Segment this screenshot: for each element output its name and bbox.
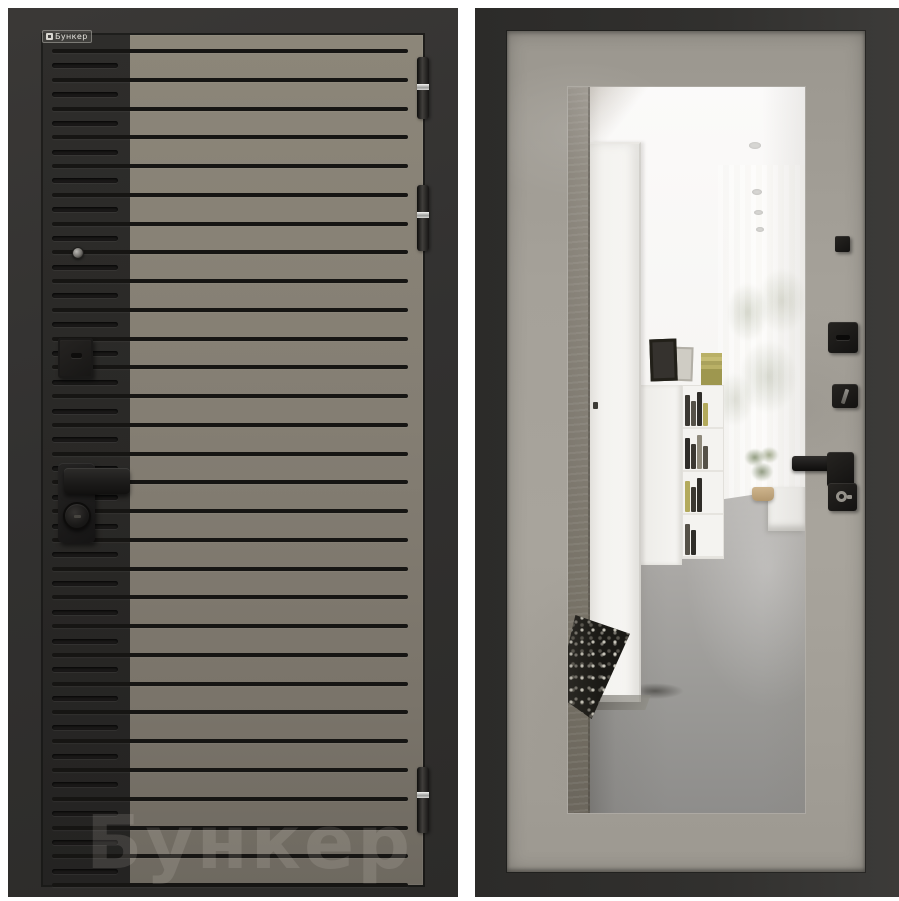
peephole-cover <box>835 236 850 252</box>
rib-groove <box>52 452 408 456</box>
rib-groove <box>52 739 408 743</box>
rib-groove <box>52 595 408 599</box>
rib-groove-short <box>52 150 118 155</box>
rib-groove-short <box>52 63 118 68</box>
plant-pot <box>752 487 774 501</box>
rib-groove-short <box>52 207 118 212</box>
rib-groove-short <box>52 552 118 557</box>
key-cylinder-escutcheon <box>828 483 857 511</box>
hinge <box>417 57 429 119</box>
rib-groove <box>52 308 408 312</box>
rib-groove <box>52 423 408 427</box>
thumbturn-slot <box>836 335 850 340</box>
wc-thumbturn <box>832 384 858 408</box>
book-spine <box>685 481 690 512</box>
book-spine <box>697 478 702 512</box>
rib-groove-short <box>52 236 118 241</box>
reflection-plant <box>744 443 780 491</box>
rib-groove-short <box>52 639 118 644</box>
bookshelf-cabinet <box>637 385 682 565</box>
book-spine <box>691 487 696 512</box>
rib-groove-short <box>52 581 118 586</box>
cylinder-keyhole <box>74 515 81 518</box>
rib-groove <box>52 682 408 686</box>
reflection-interior-door <box>590 142 641 702</box>
book-spine <box>685 438 690 469</box>
rib-groove-short <box>52 322 118 327</box>
rib-groove <box>52 710 408 714</box>
ceiling-light <box>752 189 762 195</box>
rib-groove <box>52 337 408 341</box>
bunker-logo-icon <box>46 33 53 40</box>
rib-groove <box>52 107 408 111</box>
rib-groove-short <box>52 409 118 414</box>
rib-groove-short <box>52 92 118 97</box>
rib-groove <box>52 394 408 398</box>
thumbturn-bar <box>841 388 849 404</box>
shelf-row <box>683 386 723 429</box>
book-stack <box>701 353 722 385</box>
book-spine <box>697 435 702 469</box>
rib-groove <box>52 624 408 628</box>
hinge-chrome-band <box>417 792 429 798</box>
rib-groove <box>52 78 408 82</box>
rib-groove <box>52 567 408 571</box>
book-spine <box>691 530 696 555</box>
exterior-door-panel: Бункер Бункер <box>8 8 458 897</box>
cylinder-knob <box>63 502 91 530</box>
rib-groove-short <box>52 696 118 701</box>
rib-groove <box>52 653 408 657</box>
ceiling-light <box>756 227 764 232</box>
brand-label-text: Бункер <box>55 33 88 41</box>
rib-groove-short <box>52 667 118 672</box>
book-spine <box>703 403 708 426</box>
book-spine <box>697 392 702 426</box>
interior-door-panel <box>475 8 899 897</box>
rib-groove-short <box>52 178 118 183</box>
rib-groove <box>52 768 408 772</box>
hinge <box>417 767 429 833</box>
rib-groove <box>52 365 408 369</box>
rib-groove <box>52 538 408 542</box>
book-spine <box>685 524 690 555</box>
rib-groove <box>52 193 408 197</box>
brand-watermark: Бункер <box>86 800 413 886</box>
deadbolt-thumbturn <box>828 322 858 353</box>
rib-groove <box>52 135 408 139</box>
rib-groove-short <box>52 754 118 759</box>
shelf-row <box>683 472 723 515</box>
bookshelf-shelves <box>682 385 724 559</box>
book-spine <box>685 395 690 426</box>
rib-groove <box>52 222 408 226</box>
bookshelf <box>637 385 724 565</box>
escutcheon-slot <box>71 353 82 358</box>
door-leaf <box>43 35 423 885</box>
concrete-face <box>507 31 865 872</box>
rib-groove-short <box>52 121 118 126</box>
ceiling-light <box>754 210 763 215</box>
rib-groove <box>52 164 408 168</box>
picture-frame <box>649 339 677 382</box>
shelf-row <box>683 429 723 472</box>
rib-groove-short <box>52 437 118 442</box>
book-spine <box>691 401 696 426</box>
hinge-chrome-band <box>417 212 429 218</box>
peephole <box>72 247 84 259</box>
interior-door-knob <box>593 402 598 409</box>
rib-groove <box>52 49 408 53</box>
product-image-two-door-panels: Бункер Бункер <box>0 0 899 901</box>
rib-groove-short <box>52 782 118 787</box>
hinge <box>417 185 429 251</box>
rib-groove-short <box>52 610 118 615</box>
door-handle-lever <box>64 468 130 494</box>
rib-groove-short <box>52 265 118 270</box>
book-spine <box>691 444 696 469</box>
keyhole-icon <box>836 491 847 502</box>
hinge-chrome-band <box>417 84 429 90</box>
rib-groove <box>52 279 408 283</box>
rib-groove-short <box>52 293 118 298</box>
mirror <box>568 87 805 813</box>
lock-escutcheon <box>58 338 93 378</box>
brand-label: Бункер <box>42 30 92 43</box>
rib-groove-short <box>52 380 118 385</box>
interior-handle-plate <box>827 452 854 487</box>
keyhole-tail <box>847 495 852 499</box>
rib-groove <box>52 509 408 513</box>
rib-groove <box>52 250 408 254</box>
shelf-row <box>683 515 723 558</box>
rib-groove-short <box>52 725 118 730</box>
ceiling-light <box>749 142 761 149</box>
book-spine <box>703 446 708 469</box>
